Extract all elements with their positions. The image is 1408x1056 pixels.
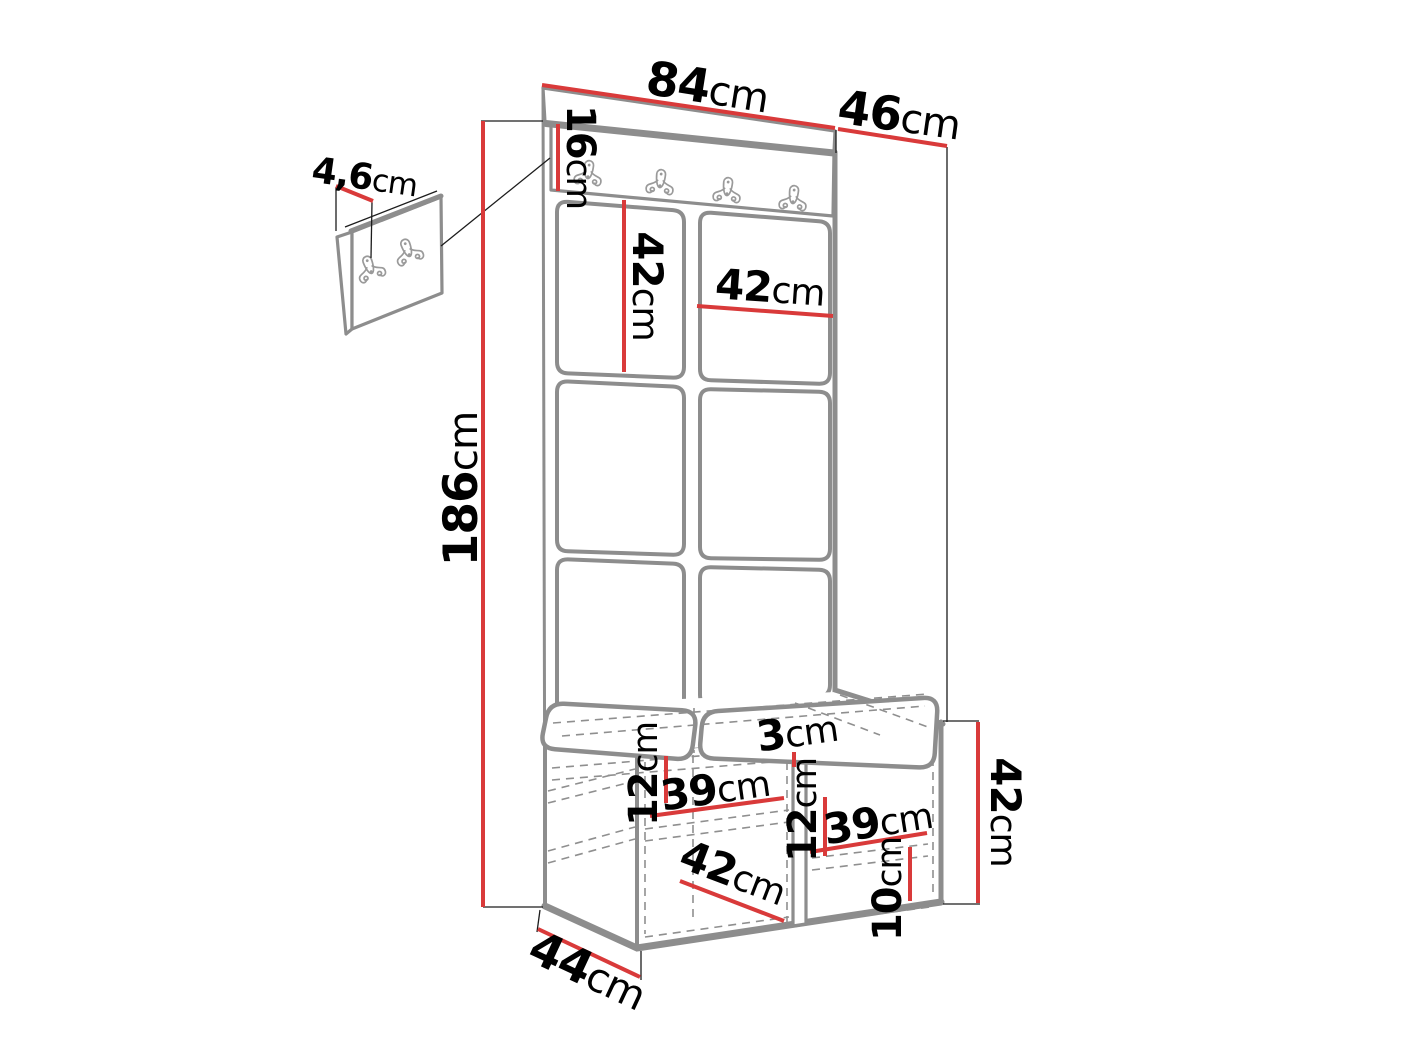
upholstered-pad	[700, 389, 830, 560]
dim-bench-offset-middle-label: 12cm	[780, 758, 826, 862]
dim-hook-rail-height-label: 16cm	[557, 105, 603, 209]
upholstered-pad	[557, 381, 684, 554]
furniture-dimension-diagram: 84cm 46cm 186cm 16cm 4,6cm 42cm 42cm 12c…	[0, 0, 1408, 1056]
dim-pad-height-label: 42cm	[623, 231, 672, 340]
upholstered-pad	[700, 567, 830, 705]
upholstered-pad	[557, 559, 684, 713]
diagram-canvas: 84cm 46cm 186cm 16cm 4,6cm 42cm 42cm 12c…	[0, 0, 1408, 1056]
dim-bench-height-label: 42cm	[981, 757, 1030, 866]
dim-bench-plinth-label: 10cm	[865, 837, 911, 941]
dim-total-height-label: 186cm	[434, 412, 489, 567]
